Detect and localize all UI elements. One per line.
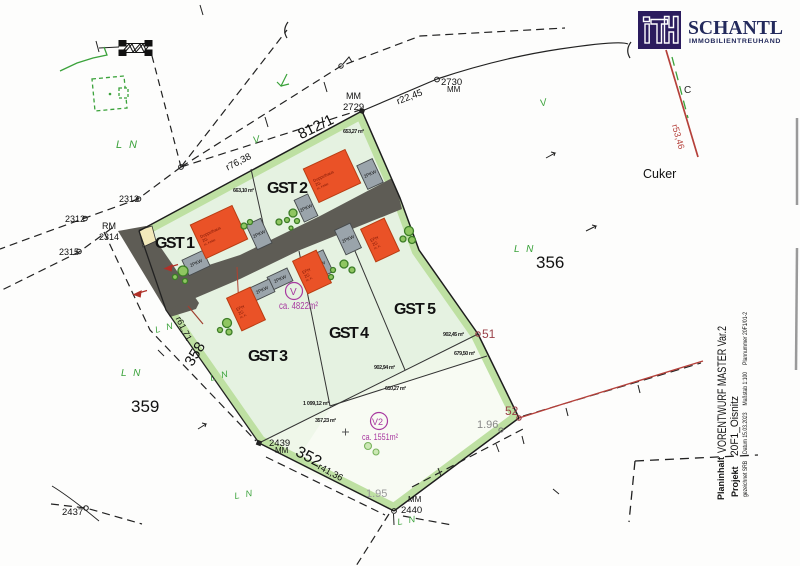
svg-text:GST 5: GST 5 [394, 301, 436, 318]
svg-text:VORENTWURF MASTER Var.2: VORENTWURF MASTER Var.2 [717, 326, 729, 453]
svg-text:GST 3: GST 3 [248, 348, 288, 365]
svg-text:902,94 m²: 902,94 m² [374, 365, 395, 371]
svg-text:2314: 2314 [99, 232, 119, 242]
svg-text:359: 359 [131, 397, 159, 416]
svg-text:2312: 2312 [65, 214, 85, 224]
svg-text:Cuker: Cuker [643, 167, 676, 181]
svg-text:Planinhalt: Planinhalt [716, 457, 726, 500]
svg-text:2315: 2315 [59, 247, 79, 257]
svg-text:2729: 2729 [343, 102, 364, 113]
svg-text:MM: MM [275, 446, 289, 455]
svg-text:MM: MM [408, 495, 422, 504]
svg-text:679,50 m²: 679,50 m² [454, 351, 475, 357]
svg-text:663,10 m²: 663,10 m² [233, 188, 254, 194]
svg-text:1 099,12 m²: 1 099,12 m² [303, 401, 329, 407]
svg-text:GST 4: GST 4 [329, 325, 369, 342]
svg-text:51: 51 [482, 327, 496, 341]
svg-text:MM: MM [447, 85, 461, 94]
svg-text:L N: L N [514, 244, 535, 255]
svg-text:1.96: 1.96 [477, 419, 498, 431]
svg-text:ca. 1551m²: ca. 1551m² [362, 432, 398, 443]
svg-text:357,23 m²: 357,23 m² [315, 418, 336, 424]
svg-text:2437: 2437 [62, 507, 83, 518]
svg-text:52: 52 [505, 404, 519, 418]
svg-text:SCHANTL: SCHANTL [688, 17, 783, 39]
svg-text:653,27 m²: 653,27 m² [343, 129, 364, 135]
svg-text:2313: 2313 [119, 194, 139, 204]
svg-text:IMMOBILIENTREUHAND: IMMOBILIENTREUHAND [689, 38, 781, 45]
svg-text:L N: L N [116, 139, 139, 151]
svg-text:L N: L N [121, 368, 142, 379]
svg-text:RM: RM [102, 221, 116, 231]
svg-text:V2: V2 [372, 417, 383, 427]
svg-text:gezeichnet SRB Datum 15.: gezeichnet SRB Datum 15.03.2023 Maßstab … [743, 311, 749, 497]
svg-text:Projekt: Projekt [730, 466, 740, 497]
svg-text:MM: MM [346, 91, 361, 101]
svg-text:GST 1: GST 1 [155, 235, 195, 252]
svg-text:ca. 4822m²: ca. 4822m² [279, 301, 319, 312]
svg-text:V: V [290, 287, 297, 298]
svg-text:GST 2: GST 2 [267, 180, 308, 197]
svg-text:1.95: 1.95 [366, 488, 387, 500]
svg-text:356: 356 [536, 253, 564, 272]
svg-text:C: C [684, 85, 691, 96]
svg-text:610,27 m²: 610,27 m² [385, 386, 406, 392]
svg-text:20F1_Oisnitz: 20F1_Oisnitz [729, 396, 741, 456]
svg-text:902,45 m²: 902,45 m² [443, 332, 464, 338]
